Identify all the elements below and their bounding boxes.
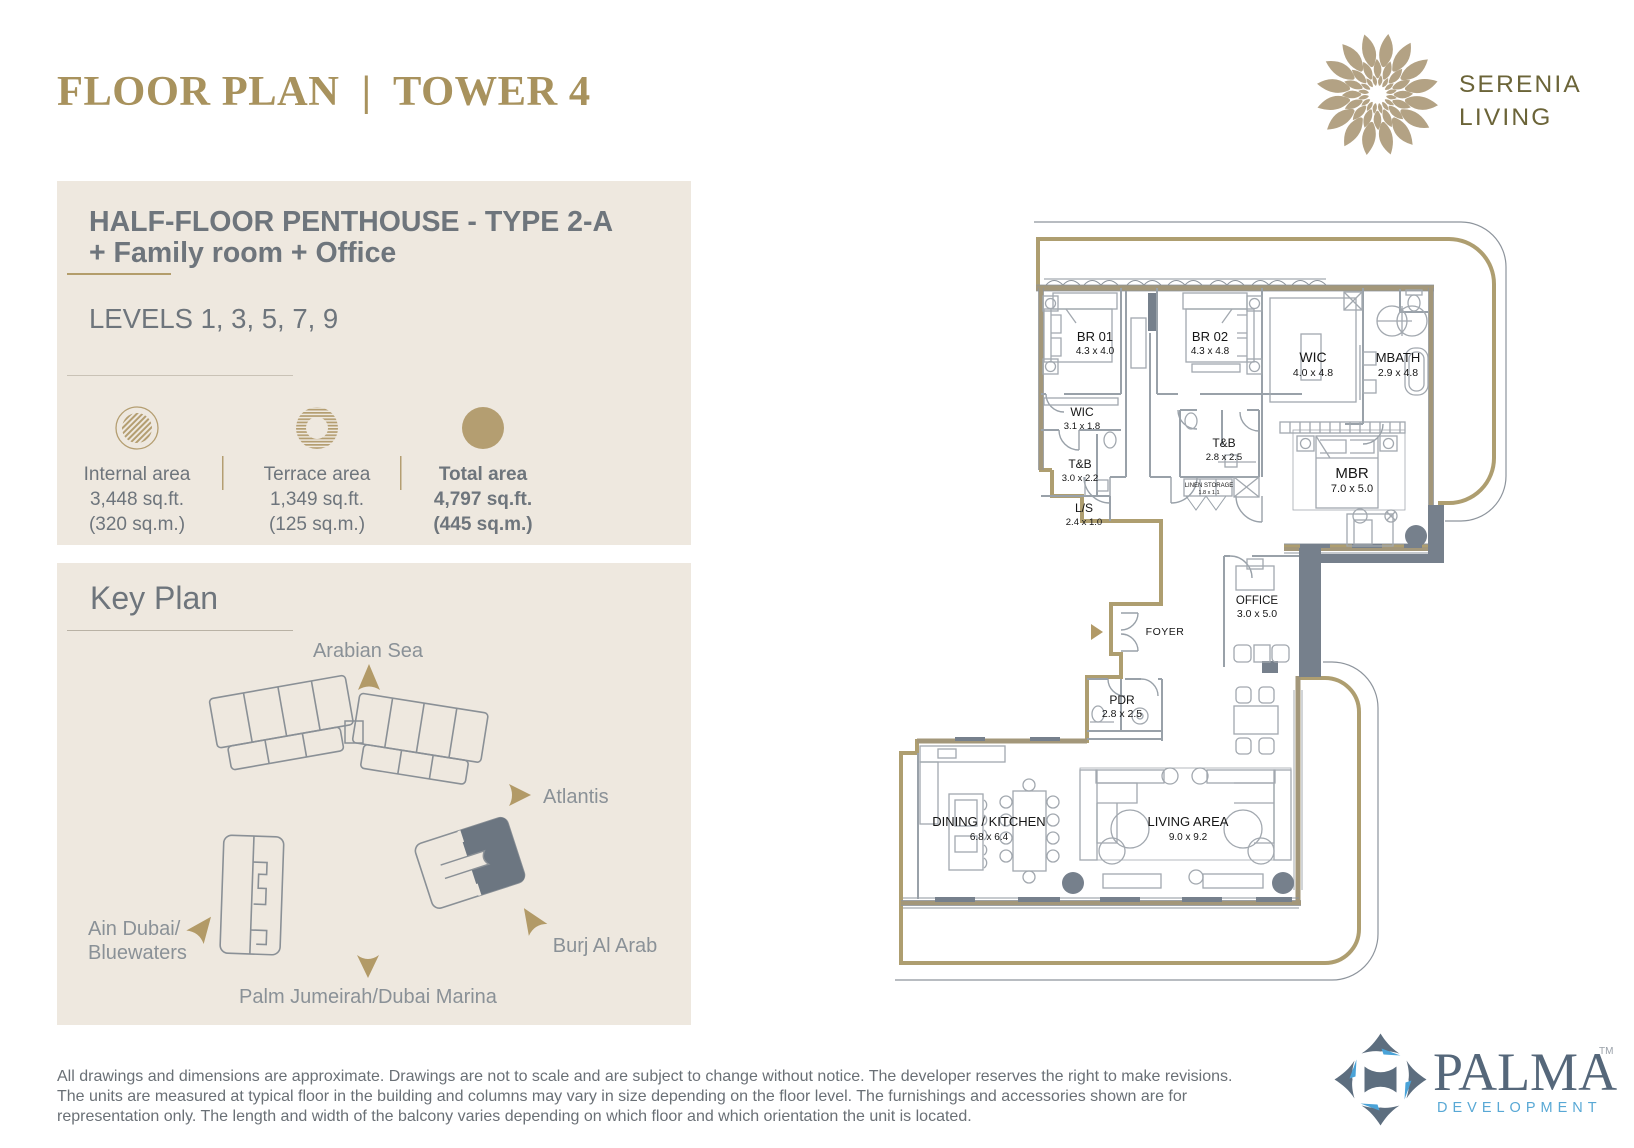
svg-text:WIC: WIC bbox=[1070, 405, 1094, 419]
svg-text:1.8 x 1.1: 1.8 x 1.1 bbox=[1198, 490, 1219, 496]
svg-text:Bluewaters: Bluewaters bbox=[88, 942, 187, 964]
svg-text:L/S: L/S bbox=[1075, 501, 1093, 515]
svg-text:Ain Dubai/: Ain Dubai/ bbox=[88, 918, 181, 940]
svg-text:3.0 x 5.0: 3.0 x 5.0 bbox=[1237, 608, 1277, 620]
svg-text:TM: TM bbox=[1599, 1046, 1613, 1057]
svg-text:DINING / KITCHEN: DINING / KITCHEN bbox=[932, 814, 1045, 829]
svg-text:2.8 x 2.5: 2.8 x 2.5 bbox=[1102, 708, 1142, 720]
svg-text:Arabian Sea: Arabian Sea bbox=[313, 640, 424, 662]
svg-text:4.3 x 4.8: 4.3 x 4.8 bbox=[1191, 346, 1230, 357]
svg-text:FOYER: FOYER bbox=[1146, 626, 1185, 638]
svg-text:MBATH: MBATH bbox=[1376, 350, 1421, 365]
svg-text:MBR: MBR bbox=[1335, 465, 1369, 482]
svg-text:3.1 x 1.8: 3.1 x 1.8 bbox=[1064, 421, 1100, 432]
svg-text:4.0 x 4.8: 4.0 x 4.8 bbox=[1293, 367, 1333, 379]
svg-text:BR 02: BR 02 bbox=[1192, 329, 1228, 344]
svg-text:SERENIA: SERENIA bbox=[1459, 71, 1582, 98]
svg-text:7.0 x 5.0: 7.0 x 5.0 bbox=[1331, 483, 1373, 495]
svg-text:2.4 x 1.0: 2.4 x 1.0 bbox=[1066, 517, 1102, 528]
svg-text:2.8 x 2.5: 2.8 x 2.5 bbox=[1206, 452, 1242, 463]
svg-text:WIC: WIC bbox=[1299, 349, 1326, 365]
svg-text:BR 01: BR 01 bbox=[1077, 329, 1113, 344]
svg-text:PALMA: PALMA bbox=[1433, 1042, 1617, 1102]
svg-text:PDR: PDR bbox=[1109, 693, 1135, 707]
svg-text:OFFICE: OFFICE bbox=[1236, 595, 1278, 607]
svg-text:2.9 x 4.8: 2.9 x 4.8 bbox=[1378, 367, 1418, 379]
svg-text:6.8 x 6.4: 6.8 x 6.4 bbox=[970, 832, 1009, 843]
svg-text:LIVING: LIVING bbox=[1459, 104, 1553, 131]
svg-text:9.0 x 9.2: 9.0 x 9.2 bbox=[1169, 832, 1208, 843]
svg-text:DEVELOPMENT: DEVELOPMENT bbox=[1437, 1100, 1602, 1116]
svg-text:T&B: T&B bbox=[1212, 436, 1235, 450]
svg-text:T&B: T&B bbox=[1068, 457, 1091, 471]
svg-text:4.3 x 4.0: 4.3 x 4.0 bbox=[1076, 346, 1115, 357]
svg-text:Atlantis: Atlantis bbox=[543, 786, 609, 808]
svg-text:Burj Al Arab: Burj Al Arab bbox=[553, 935, 658, 957]
svg-text:LINEN STORAGE: LINEN STORAGE bbox=[1185, 483, 1234, 489]
svg-text:3.0 x 2.2: 3.0 x 2.2 bbox=[1062, 473, 1098, 484]
svg-text:Palm Jumeirah/Dubai Marina: Palm Jumeirah/Dubai Marina bbox=[239, 986, 498, 1008]
svg-text:LIVING AREA: LIVING AREA bbox=[1148, 814, 1229, 829]
